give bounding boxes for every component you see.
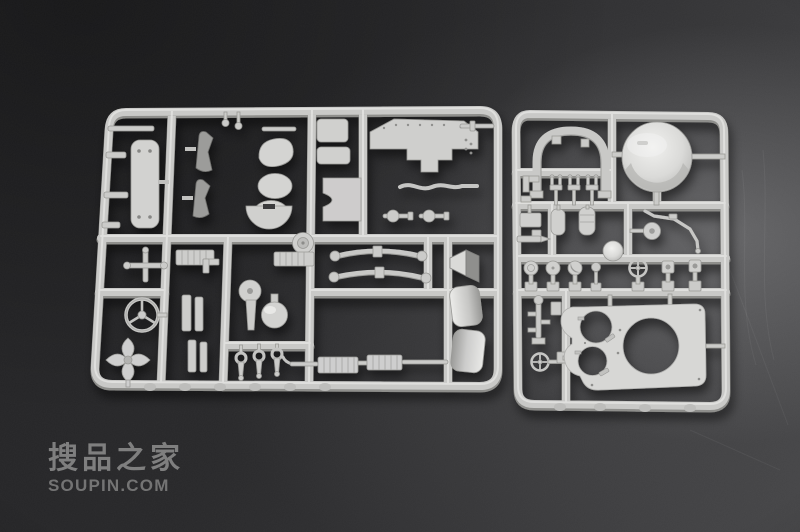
watermark-subtitle: SOUPIN.COM bbox=[48, 476, 184, 496]
photo-model-kit-sprues: 搜品之家 SOUPIN.COM bbox=[0, 0, 800, 532]
thin-rod-part bbox=[262, 127, 296, 131]
watermark: 搜品之家 SOUPIN.COM bbox=[48, 442, 184, 496]
eyelet-pin-parts bbox=[236, 344, 282, 381]
oval-disc-part bbox=[258, 174, 292, 199]
small-dome-part bbox=[603, 241, 623, 261]
watermark-title: 搜品之家 bbox=[48, 442, 184, 475]
hatch-box-parts bbox=[317, 119, 350, 164]
hub-disc-part bbox=[293, 233, 314, 254]
